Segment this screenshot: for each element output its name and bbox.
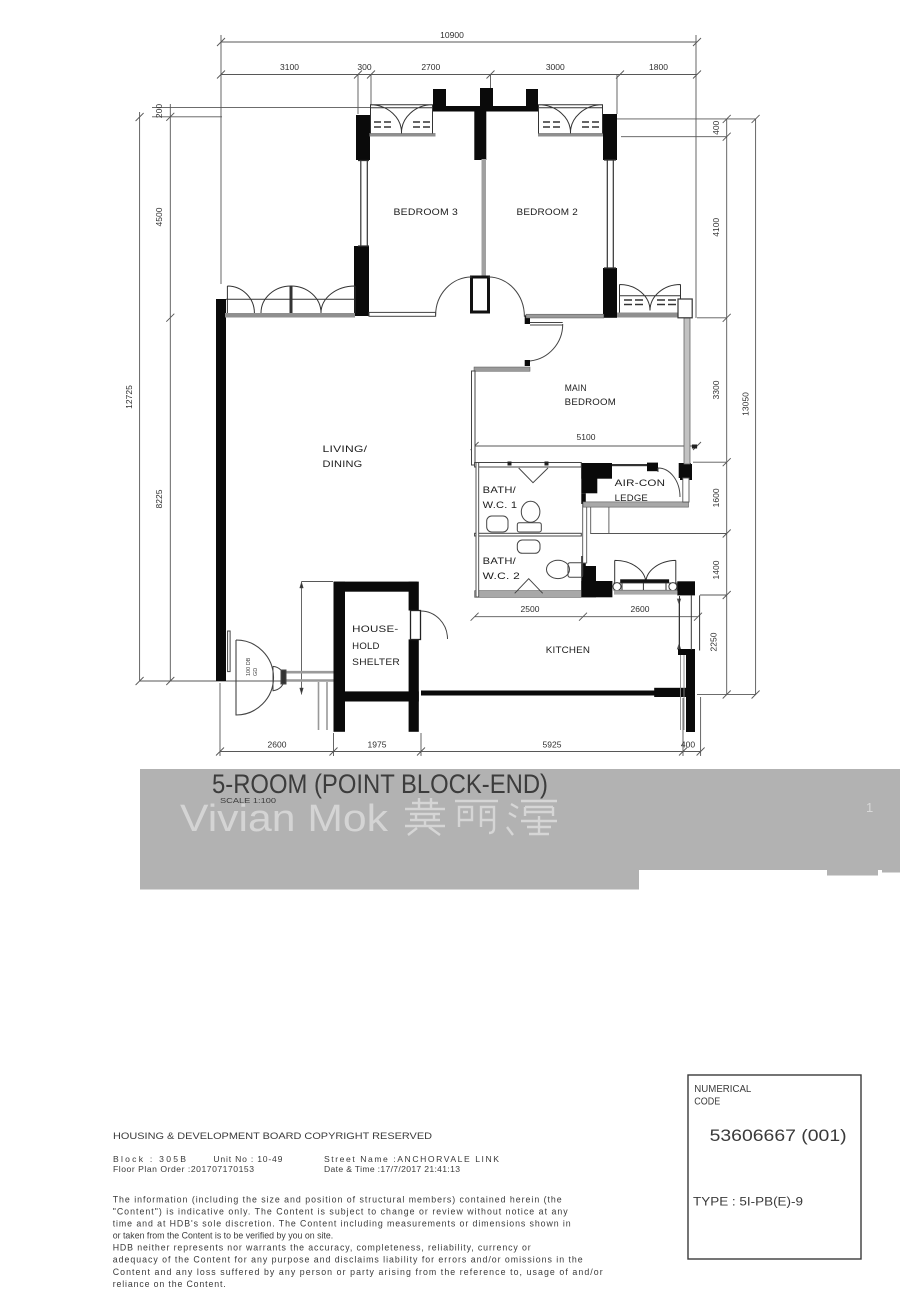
svg-text:W.C. 2: W.C. 2	[483, 571, 520, 582]
svg-text:2250: 2250	[709, 632, 719, 651]
svg-text:1600: 1600	[711, 488, 721, 507]
svg-text:1400: 1400	[711, 560, 721, 579]
svg-text:300: 300	[357, 62, 371, 72]
svg-text:BEDROOM 2: BEDROOM 2	[517, 207, 579, 218]
svg-text:HOUSING & DEVELOPMENT BOARD C: HOUSING & DEVELOPMENT BOARD COPYRIGHT RE…	[113, 1131, 432, 1141]
svg-text:or taken from the Content is t: or taken from the Content is to be verif…	[113, 1231, 334, 1241]
svg-text:Floor Plan Order :201707170153: Floor Plan Order :201707170153	[113, 1164, 254, 1174]
svg-text:5100: 5100	[577, 432, 596, 442]
svg-text:3300: 3300	[711, 380, 721, 399]
svg-text:BEDROOM: BEDROOM	[565, 397, 616, 408]
svg-text:HDB neither represents nor war: HDB neither represents nor warrants the …	[113, 1243, 531, 1253]
svg-text:NUMERICAL: NUMERICAL	[694, 1083, 751, 1095]
svg-text:4100: 4100	[711, 218, 721, 237]
svg-text:Vivian Mok: Vivian Mok	[180, 798, 389, 840]
svg-text:Content and any loss suffered: Content and any loss suffered by any per…	[113, 1267, 603, 1277]
svg-text:10900: 10900	[440, 30, 464, 40]
svg-text:2600: 2600	[268, 740, 287, 750]
svg-text:TYPE : 5I-PB(E)-9: TYPE : 5I-PB(E)-9	[693, 1197, 803, 1209]
svg-text:Street Name :ANCHORVALE LINK: Street Name :ANCHORVALE LINK	[324, 1154, 499, 1164]
svg-text:53606667 (001): 53606667 (001)	[710, 1126, 847, 1145]
svg-text:reliance on the Content.: reliance on the Content.	[113, 1279, 226, 1289]
svg-text:3100: 3100	[280, 62, 299, 72]
svg-text:W.C. 1: W.C. 1	[483, 500, 518, 511]
svg-text:12725: 12725	[124, 385, 134, 409]
svg-text:400: 400	[711, 120, 721, 134]
svg-text:1975: 1975	[368, 740, 387, 750]
svg-text:8225: 8225	[154, 489, 164, 508]
svg-text:BATH/: BATH/	[483, 485, 516, 496]
svg-text:BEDROOM 3: BEDROOM 3	[394, 207, 459, 218]
svg-text:2600: 2600	[631, 604, 650, 614]
svg-text:2500: 2500	[521, 604, 540, 614]
svg-text:400: 400	[681, 740, 695, 750]
svg-text:SHELTER: SHELTER	[352, 657, 400, 668]
svg-text:time and at HDB's sole discret: time and at HDB's sole discretion. The C…	[113, 1219, 571, 1229]
svg-text:100 DB: 100 DB	[246, 657, 252, 676]
svg-text:1: 1	[866, 800, 873, 815]
svg-text:5925: 5925	[543, 740, 562, 750]
svg-text:AIR-CON: AIR-CON	[615, 478, 666, 489]
svg-text:adequacy of the Content for an: adequacy of the Content for any purpose …	[113, 1255, 583, 1265]
svg-text:CODE: CODE	[694, 1096, 720, 1108]
svg-text:13050: 13050	[741, 392, 751, 416]
svg-text:LIVING/: LIVING/	[323, 444, 368, 455]
svg-text:200: 200	[154, 104, 164, 118]
svg-text:HOLD: HOLD	[352, 641, 380, 652]
svg-text:KITCHEN: KITCHEN	[546, 645, 590, 656]
svg-text:4500: 4500	[154, 207, 164, 226]
svg-text:GD: GD	[253, 668, 259, 676]
svg-text:5-ROOM (POINT BLOCK-END): 5-ROOM (POINT BLOCK-END)	[212, 769, 548, 799]
svg-text:LEDGE: LEDGE	[615, 493, 648, 504]
svg-text:2700: 2700	[421, 62, 440, 72]
svg-text:MAIN: MAIN	[565, 383, 587, 394]
svg-text:"Content") is indicative only.: "Content") is indicative only. The Conte…	[113, 1206, 569, 1216]
svg-text:DINING: DINING	[323, 459, 363, 470]
svg-text:1800: 1800	[649, 62, 668, 72]
svg-text:Date & Time :17/7/2017 21:41:: Date & Time :17/7/2017 21:41:13	[324, 1164, 460, 1174]
svg-text:The information (including the: The information (including the size and …	[113, 1194, 562, 1204]
svg-text:3000: 3000	[546, 62, 565, 72]
svg-text:HOUSE-: HOUSE-	[352, 624, 398, 635]
svg-text:BATH/: BATH/	[483, 556, 516, 567]
svg-text:Unit No : 10-49: Unit No : 10-49	[213, 1154, 282, 1164]
